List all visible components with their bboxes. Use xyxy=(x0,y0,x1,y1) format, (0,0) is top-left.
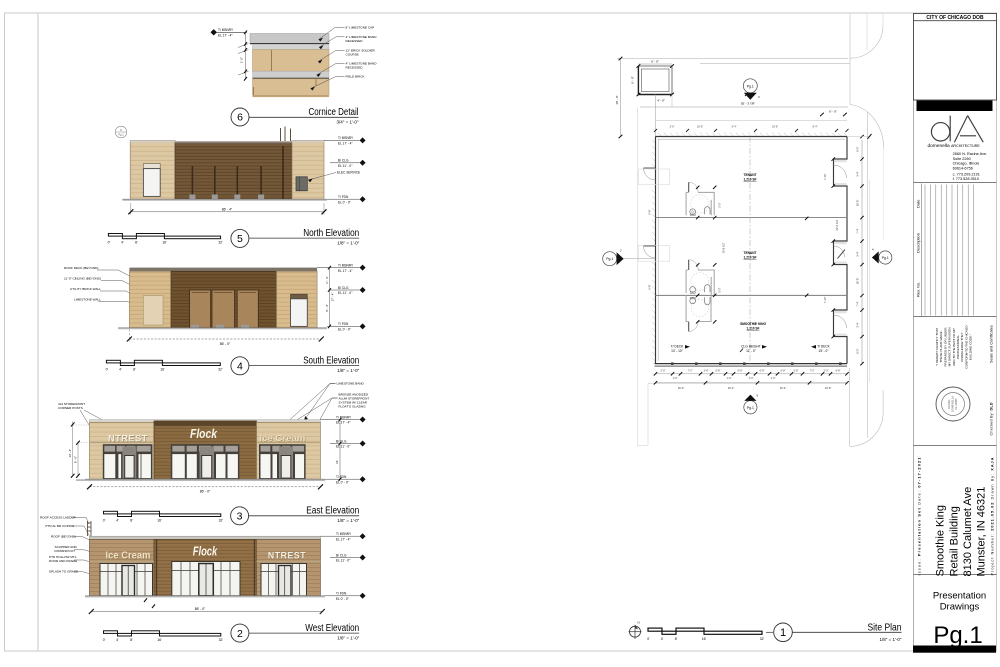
svg-text:Flock: Flock xyxy=(190,427,218,441)
svg-text:0'-6": 0'-6" xyxy=(648,209,652,214)
svg-text:01-14985: 01-14985 xyxy=(954,398,958,410)
svg-text:1/8" = 1'-0": 1/8" = 1'-0" xyxy=(880,637,902,642)
svg-text:Site Plan: Site Plan xyxy=(868,622,902,633)
svg-text:RECESSED: RECESSED xyxy=(346,66,364,70)
svg-text:NTREST: NTREST xyxy=(268,551,306,561)
svg-text:32': 32' xyxy=(218,241,223,245)
svg-text:Seals and Certificates: Seals and Certificates xyxy=(989,325,994,363)
svg-text:6'-8": 6'-8" xyxy=(716,370,721,373)
svg-text:EL 0' - 0": EL 0' - 0" xyxy=(338,328,351,332)
svg-text:T/ DECK: T/ DECK xyxy=(671,345,684,349)
svg-text:16'-8": 16'-8" xyxy=(856,278,860,285)
svg-text:LIMESTONE WALL: LIMESTONE WALL xyxy=(74,298,101,302)
svg-text:9' - 0": 9' - 0" xyxy=(73,456,77,463)
svg-text:16'-4": 16'-4" xyxy=(780,386,787,390)
svg-text:EL 11' - 0": EL 11' - 0" xyxy=(338,291,352,295)
svg-text:EL 11' - 0": EL 11' - 0" xyxy=(338,164,352,168)
svg-text:86' - 4": 86' - 4" xyxy=(222,207,233,211)
svg-text:6'-8": 6'-8" xyxy=(738,370,743,373)
svg-text:East Elevation: East Elevation xyxy=(306,506,359,517)
svg-text:Description: Description xyxy=(916,233,921,253)
svg-text:1'-0": 1'-0" xyxy=(824,370,829,373)
svg-text:55' - 3 7/8": 55' - 3 7/8" xyxy=(741,102,755,106)
svg-text:16'-0": 16'-0" xyxy=(678,386,685,390)
svg-text:10' - 0": 10' - 0" xyxy=(615,95,619,104)
svg-text:ROOF (BEYOND): ROOF (BEYOND) xyxy=(51,535,76,539)
svg-text:6'-8": 6'-8" xyxy=(836,370,841,373)
svg-text:EL 0' - 0": EL 0' - 0" xyxy=(338,200,351,204)
svg-text:NTREST: NTREST xyxy=(108,434,148,444)
svg-text:EL 17' - 4": EL 17' - 4" xyxy=(338,269,353,273)
svg-text:5'-5": 5'-5" xyxy=(718,202,722,207)
svg-text:7'-4": 7'-4" xyxy=(856,228,860,233)
svg-text:1'-6": 1'-6" xyxy=(240,57,244,63)
svg-text:Drawings: Drawings xyxy=(940,602,980,613)
svg-text:0': 0' xyxy=(647,637,650,641)
svg-text:ROOF DECK (BEYOND): ROOF DECK (BEYOND) xyxy=(64,266,98,270)
svg-text:EL 17' - 4": EL 17' - 4" xyxy=(336,537,351,541)
svg-text:DOOR AND FRAME: DOOR AND FRAME xyxy=(49,559,77,563)
svg-text:Pg.1: Pg.1 xyxy=(606,257,613,261)
svg-text:8': 8' xyxy=(135,241,138,245)
svg-text:FIELD BRICK: FIELD BRICK xyxy=(346,75,366,79)
svg-text:16'-8": 16'-8" xyxy=(856,200,860,207)
svg-text:EL 0' - 0": EL 0' - 0" xyxy=(336,597,349,601)
svg-text:7'-4": 7'-4" xyxy=(856,301,860,306)
svg-text:Pg.1: Pg.1 xyxy=(933,622,982,649)
svg-text:Munster, IN 46321: Munster, IN 46321 xyxy=(976,487,988,577)
svg-text:2660 N. Racine Ave.: 2660 N. Racine Ave. xyxy=(953,152,988,156)
svg-text:10'-8": 10'-8" xyxy=(825,386,832,390)
svg-text:6'-0": 6'-0" xyxy=(856,146,860,151)
svg-text:1,210 SF: 1,210 SF xyxy=(744,178,757,182)
svg-text:86' - 0": 86' - 0" xyxy=(200,490,211,494)
svg-text:EL 17' - 4": EL 17' - 4" xyxy=(336,421,351,425)
svg-text:0': 0' xyxy=(106,367,109,371)
svg-text:1: 1 xyxy=(780,627,786,639)
svg-text:1/8" = 1'-0": 1/8" = 1'-0" xyxy=(337,241,359,246)
svg-text:2'-0": 2'-0" xyxy=(661,370,666,373)
svg-text:Flock: Flock xyxy=(193,544,218,558)
svg-text:North Elevation: North Elevation xyxy=(303,228,359,239)
svg-text:EL 11' - 0": EL 11' - 0" xyxy=(336,445,350,449)
svg-text:COURSE: COURSE xyxy=(346,53,359,57)
svg-text:SMOOTHIE KING: SMOOTHIE KING xyxy=(740,322,766,326)
svg-text:Pg.1: Pg.1 xyxy=(747,84,754,88)
svg-text:0': 0' xyxy=(103,638,106,642)
svg-text:Date: Date xyxy=(916,199,921,208)
svg-text:4: 4 xyxy=(237,361,243,373)
svg-text:South Elevation: South Elevation xyxy=(303,356,359,367)
svg-text:Presentation: Presentation xyxy=(933,591,986,602)
svg-text:T/ FDN: T/ FDN xyxy=(336,475,347,479)
svg-text:T/ MSNRY: T/ MSNRY xyxy=(338,136,354,140)
svg-text:7'-10": 7'-10" xyxy=(823,174,827,181)
svg-text:2'-0": 2'-0" xyxy=(670,126,675,129)
svg-text:86' - 0": 86' - 0" xyxy=(195,607,206,611)
svg-text:Cornice Detail: Cornice Detail xyxy=(309,107,359,118)
svg-text:DANIEL: DANIEL xyxy=(947,399,951,409)
svg-text:16': 16' xyxy=(335,460,339,464)
svg-text:10'-0": 10'-0" xyxy=(772,126,778,129)
svg-text:c. 773.209.2191: c. 773.209.2191 xyxy=(953,172,980,176)
svg-text:FLOAT'G GLAZING: FLOAT'G GLAZING xyxy=(339,405,367,409)
svg-text:1'-0": 1'-0" xyxy=(727,377,732,380)
svg-text:T/ FDN: T/ FDN xyxy=(338,195,349,199)
svg-text:EL 11' - 0": EL 11' - 0" xyxy=(336,559,350,563)
svg-text:5'-4": 5'-4" xyxy=(813,126,818,129)
svg-text:6' - 4": 6' - 4" xyxy=(325,276,329,283)
svg-text:CORNER POSTS: CORNER POSTS xyxy=(58,406,83,410)
svg-text:6'-0": 6'-0" xyxy=(856,348,860,353)
svg-text:Smoothie King: Smoothie King xyxy=(935,505,947,577)
svg-text:B/ CLG: B/ CLG xyxy=(338,159,349,163)
svg-text:3: 3 xyxy=(237,511,243,523)
svg-text:3'-4": 3'-4" xyxy=(856,322,860,327)
svg-text:Suite 2260: Suite 2260 xyxy=(953,157,971,161)
svg-text:4': 4' xyxy=(116,638,119,642)
svg-text:CLG HEIGHT: CLG HEIGHT xyxy=(741,345,761,349)
svg-text:5'-5": 5'-5" xyxy=(718,287,722,292)
svg-text:6' - 0": 6' - 0" xyxy=(829,110,837,114)
svg-text:T/ MSNRY: T/ MSNRY xyxy=(338,263,354,267)
svg-text:3/4" = 1'-0": 3/4" = 1'-0" xyxy=(337,120,359,125)
svg-text:ROOF ACCESS LADDER: ROOF ACCESS LADDER xyxy=(40,515,77,519)
svg-text:6'-8": 6'-8" xyxy=(760,370,765,373)
svg-text:11' - 0": 11' - 0" xyxy=(746,349,756,353)
svg-text:16': 16' xyxy=(157,638,162,642)
svg-text:T/ FDN: T/ FDN xyxy=(336,592,347,596)
svg-text:LIMESTONE BAND: LIMESTONE BAND xyxy=(337,382,365,386)
svg-text:10'-0": 10'-0" xyxy=(697,126,703,129)
svg-text:16'-4": 16'-4" xyxy=(728,386,735,390)
svg-text:0'-6": 0'-6" xyxy=(648,284,652,289)
svg-text:16': 16' xyxy=(702,637,707,641)
svg-text:0': 0' xyxy=(108,241,111,245)
svg-text:Rev. No.: Rev. No. xyxy=(916,282,921,297)
svg-text:3'-4": 3'-4" xyxy=(856,251,860,256)
svg-text:6: 6 xyxy=(237,112,243,124)
svg-text:Ice Cream: Ice Cream xyxy=(260,433,306,443)
svg-text:T/ MSNRY: T/ MSNRY xyxy=(336,415,352,419)
svg-text:3'-8": 3'-8" xyxy=(794,370,799,373)
svg-text:PTD AL BR COPING: PTD AL BR COPING xyxy=(46,524,75,528)
svg-text:Pg.1: Pg.1 xyxy=(747,406,754,410)
svg-text:TENANT: TENANT xyxy=(744,173,757,177)
svg-text:1/8" = 1'-0": 1/8" = 1'-0" xyxy=(337,636,359,641)
svg-text:8': 8' xyxy=(130,518,133,522)
svg-text:EL 17' - 4": EL 17' - 4" xyxy=(338,142,353,146)
svg-text:1,210 SF: 1,210 SF xyxy=(747,327,760,331)
svg-text:7'-2": 7'-2" xyxy=(810,370,815,373)
svg-text:11'-0" CEILING (BEYOND): 11'-0" CEILING (BEYOND) xyxy=(64,277,101,281)
svg-text:Issue: Presentation Set: Issue: Presentation Set Date: 07-17-2021 xyxy=(917,457,922,576)
svg-text:1'-0": 1'-0" xyxy=(749,377,754,380)
svg-text:N: N xyxy=(638,621,640,625)
svg-text:B/ CLG: B/ CLG xyxy=(336,439,347,443)
svg-text:EL 17' - 4": EL 17' - 4" xyxy=(218,33,233,37)
svg-text:EL 0' - 0": EL 0' - 0" xyxy=(336,480,349,484)
svg-text:8': 8' xyxy=(675,637,678,641)
svg-text:T/ FDN: T/ FDN xyxy=(338,322,349,326)
svg-text:13' - 10": 13' - 10" xyxy=(671,349,683,353)
svg-text:4': 4' xyxy=(121,241,124,245)
svg-text:Pg.1: Pg.1 xyxy=(118,133,124,137)
svg-text:DOWNSPOUT: DOWNSPOUT xyxy=(55,549,76,553)
svg-text:8' - 4": 8' - 4" xyxy=(325,304,329,311)
svg-text:3'-4": 3'-4" xyxy=(856,171,860,176)
svg-text:32': 32' xyxy=(219,638,224,642)
svg-text:Retail Building: Retail Building xyxy=(949,506,961,576)
svg-text:0': 0' xyxy=(103,518,106,522)
svg-text:1/8" = 1'-0": 1/8" = 1'-0" xyxy=(337,368,359,373)
svg-text:16': 16' xyxy=(160,367,165,371)
svg-text:f. 773.528.3510: f. 773.528.3510 xyxy=(953,177,979,181)
svg-text:6'-8": 6'-8" xyxy=(781,370,786,373)
svg-text:Project Number: 2021.05.02: Project Number: 2021.05.02 Drawn By: XAJ… xyxy=(990,457,995,575)
svg-text:SPLASH TO GRADE: SPLASH TO GRADE xyxy=(49,570,78,574)
svg-text:7'-10": 7'-10" xyxy=(823,297,827,304)
svg-text:1,210 SF: 1,210 SF xyxy=(744,256,757,260)
svg-text:60614-6756: 60614-6756 xyxy=(953,166,973,170)
svg-text:T/ MSNRY: T/ MSNRY xyxy=(336,532,352,536)
svg-text:4': 4' xyxy=(119,367,122,371)
svg-text:West Elevation: West Elevation xyxy=(305,623,359,634)
svg-text:4' - 0": 4' - 0" xyxy=(657,99,665,103)
svg-text:8130 Calumet Ave: 8130 Calumet Ave xyxy=(962,487,974,577)
svg-text:15' - 0": 15' - 0" xyxy=(819,349,829,353)
svg-text:17' - 4": 17' - 4" xyxy=(331,293,335,302)
svg-text:8': 8' xyxy=(133,367,136,371)
svg-text:DOMENELLA: DOMENELLA xyxy=(951,396,955,412)
svg-text:10'-6 1/2": 10'-6 1/2" xyxy=(722,242,726,253)
svg-text:32': 32' xyxy=(219,518,224,522)
svg-text:UTILITY BRICK WALL: UTILITY BRICK WALL xyxy=(70,287,101,291)
svg-text:32': 32' xyxy=(760,637,765,641)
svg-text:7'-2": 7'-2" xyxy=(688,370,693,373)
svg-text:5'-4": 5'-4" xyxy=(732,126,737,129)
svg-text:Ice Cream: Ice Cream xyxy=(106,550,151,562)
svg-text:3'-8": 3'-8" xyxy=(704,370,709,373)
svg-text:32': 32' xyxy=(218,367,223,371)
svg-text:6' - 0": 6' - 0" xyxy=(651,60,659,64)
svg-text:ELEC SERVICE: ELEC SERVICE xyxy=(337,171,360,175)
svg-text:TENANT: TENANT xyxy=(744,251,757,255)
svg-text:B/ CLG: B/ CLG xyxy=(336,553,347,557)
svg-text:Chicago, Illinois: Chicago, Illinois xyxy=(953,162,980,166)
svg-text:4': 4' xyxy=(661,637,664,641)
svg-text:4': 4' xyxy=(116,518,119,522)
svg-text:2: 2 xyxy=(237,628,243,640)
svg-text:16': 16' xyxy=(162,241,167,245)
svg-text:8': 8' xyxy=(130,638,133,642)
svg-text:86' - 0": 86' - 0" xyxy=(220,342,231,346)
svg-text:B/ CLG: B/ CLG xyxy=(338,286,349,290)
svg-text:16': 16' xyxy=(157,518,162,522)
svg-text:RECESSED: RECESSED xyxy=(346,39,364,43)
svg-text:1'-0": 1'-0" xyxy=(771,377,776,380)
svg-text:Pg.1: Pg.1 xyxy=(882,256,889,260)
svg-text:T/ MSNRY: T/ MSNRY xyxy=(218,28,234,32)
svg-text:22'-5 1/4": 22'-5 1/4" xyxy=(835,219,839,230)
svg-text:T/ DECK: T/ DECK xyxy=(817,345,830,349)
svg-text:CITY OF CHICAGO DOB: CITY OF CHICAGO DOB xyxy=(926,15,984,21)
svg-text:6' - 0": 6' - 0" xyxy=(631,76,635,84)
svg-text:8" LIMESTONE CAP: 8" LIMESTONE CAP xyxy=(346,26,375,30)
svg-text:Checked By: DLD: Checked By: DLD xyxy=(990,402,994,435)
svg-text:1'-0": 1'-0" xyxy=(673,377,678,380)
svg-text:5: 5 xyxy=(237,233,243,245)
svg-text:1/8" = 1'-0": 1/8" = 1'-0" xyxy=(337,518,359,523)
svg-text:BUILDING CODE.": BUILDING CODE." xyxy=(969,334,973,360)
svg-text:14' - 2": 14' - 2" xyxy=(68,449,72,458)
